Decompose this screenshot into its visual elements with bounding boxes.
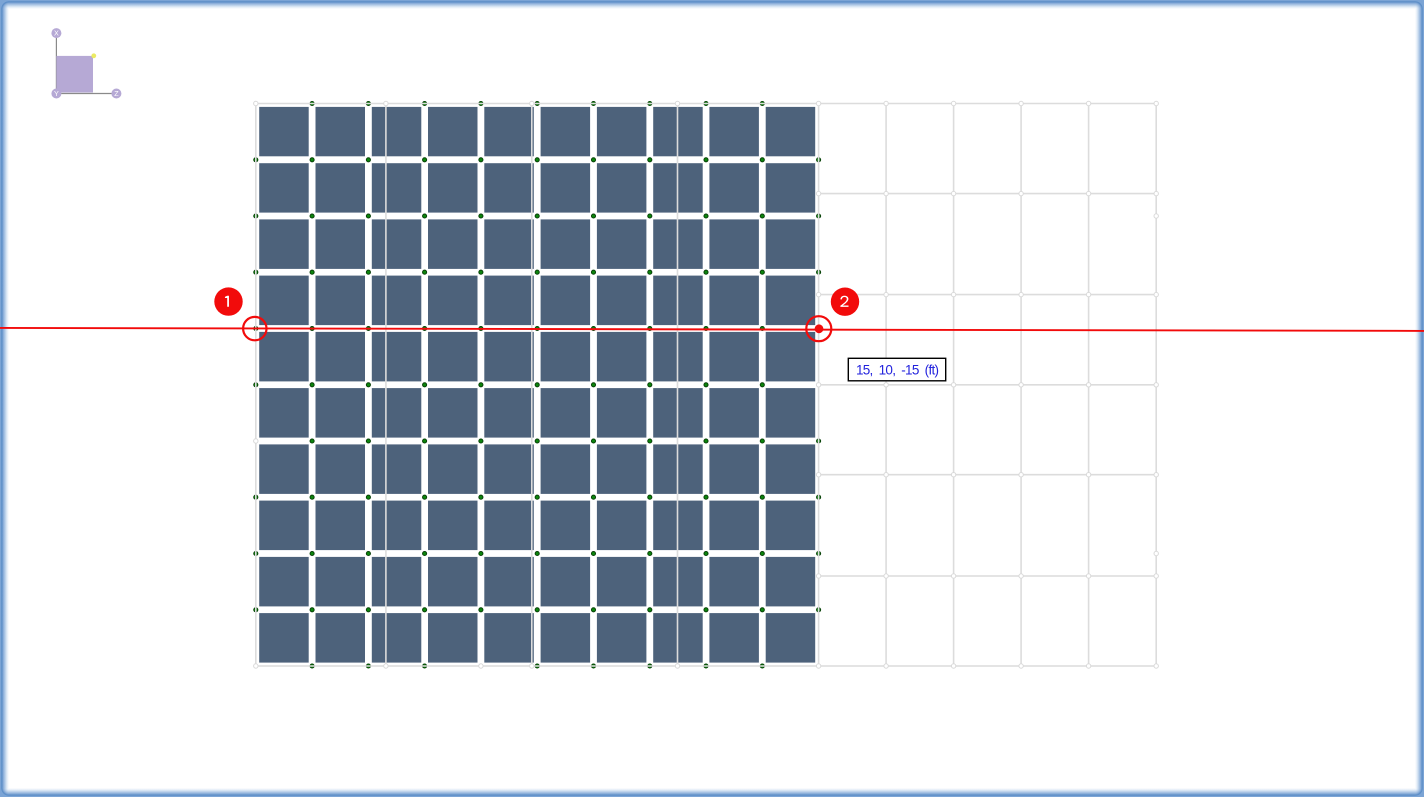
svg-text:Z: Z — [114, 89, 119, 98]
svg-text:X: X — [54, 29, 59, 38]
svg-text:15, 10, -15 (ft): 15, 10, -15 (ft) — [856, 363, 939, 378]
svg-text:Y: Y — [54, 89, 59, 98]
